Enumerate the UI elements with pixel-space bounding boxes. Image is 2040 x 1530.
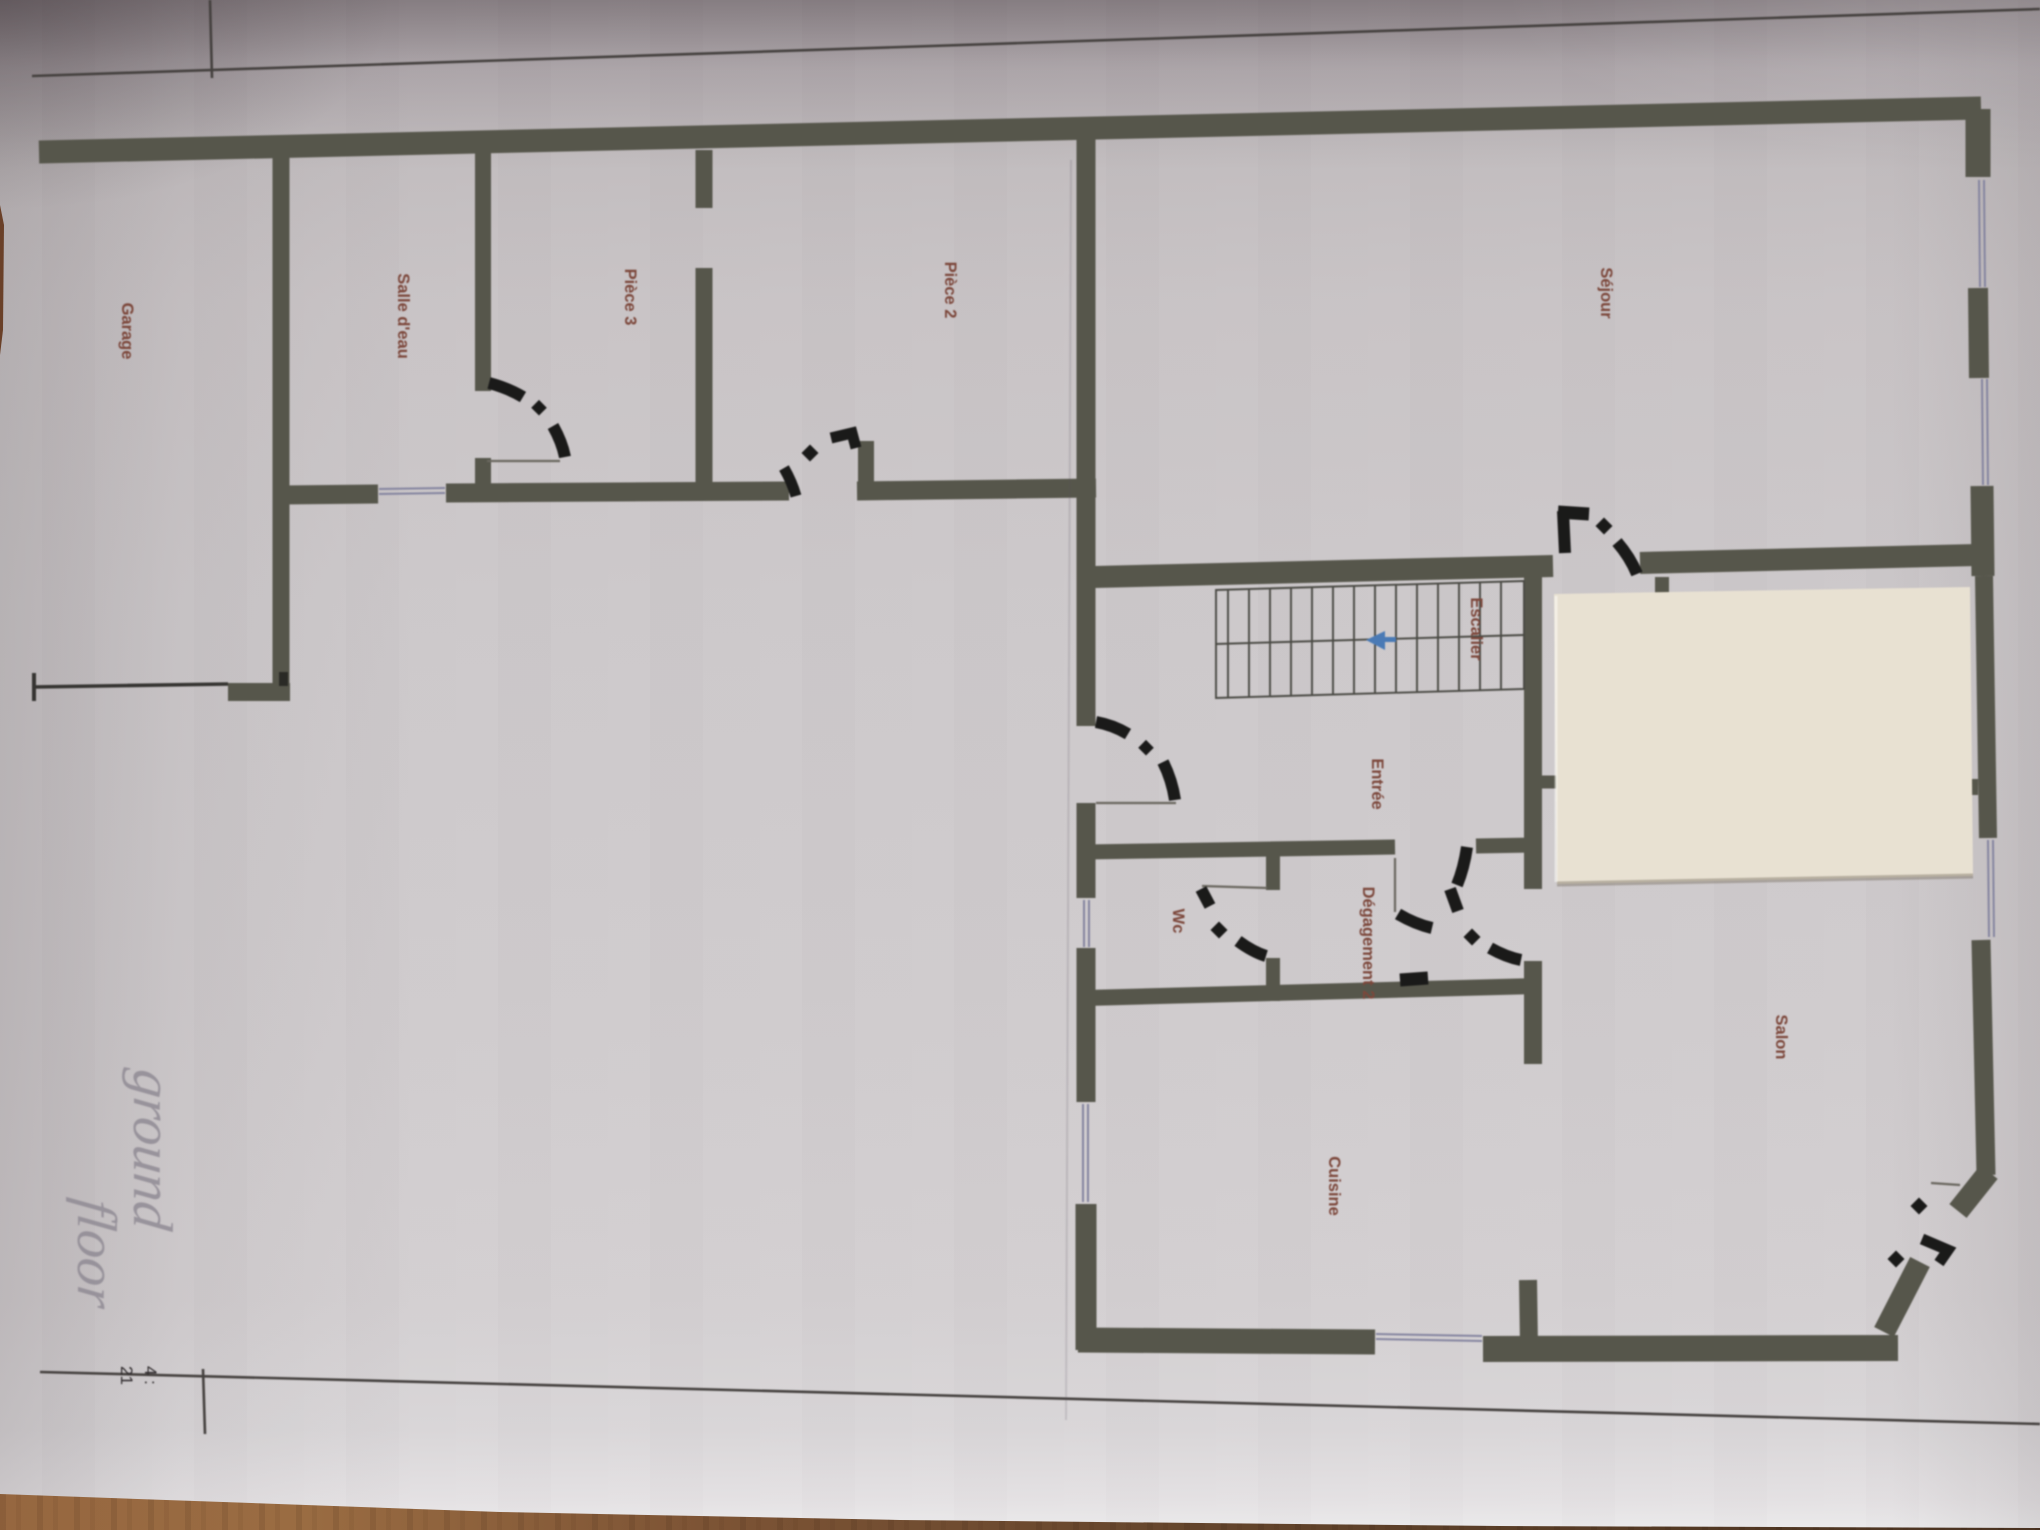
svg-text:Séjour: Séjour xyxy=(1597,267,1615,319)
svg-text:Pièce 3: Pièce 3 xyxy=(621,269,639,326)
svg-text:Salle d'eau: Salle d'eau xyxy=(394,273,412,359)
svg-text:Entrée: Entrée xyxy=(1368,758,1386,809)
svg-text:4 :: 4 : xyxy=(141,1366,160,1385)
svg-text:Pièce 2: Pièce 2 xyxy=(941,262,959,319)
svg-text:Garage: Garage xyxy=(118,303,136,360)
svg-text:Wc: Wc xyxy=(1169,909,1187,934)
svg-text:21: 21 xyxy=(117,1366,136,1385)
svg-text:ground: ground xyxy=(121,1067,183,1234)
svg-text:Cuisine: Cuisine xyxy=(1325,1156,1343,1216)
svg-text:Escalier: Escalier xyxy=(1467,597,1485,661)
svg-text:floor: floor xyxy=(65,1196,127,1313)
svg-text:Dégagement 2: Dégagement 2 xyxy=(1359,887,1377,1000)
svg-text:Salon: Salon xyxy=(1772,1015,1790,1060)
